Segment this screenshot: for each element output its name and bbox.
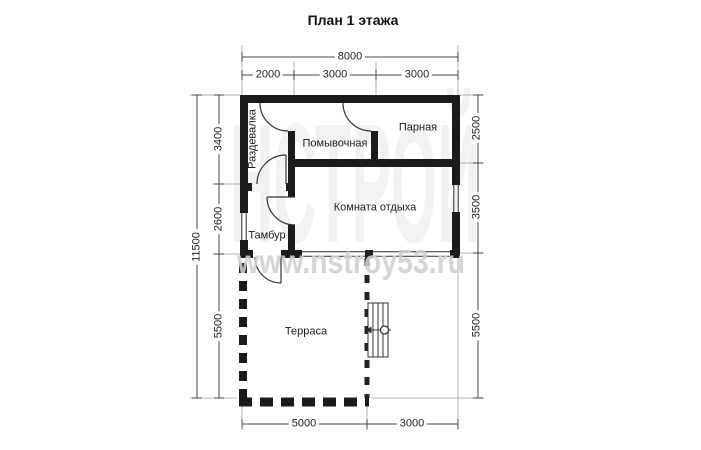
room-label-tambur: Тамбур (248, 231, 285, 242)
dim-left-segment-2: 2600 (214, 204, 225, 234)
floor-plan-drawing: НСТРОЙ (0, 0, 701, 450)
stairs-symbol (365, 303, 391, 357)
site-watermark: www.nstroy53.ru (236, 243, 465, 280)
dim-top-total: 8000 (335, 52, 365, 63)
room-label-razdevalka: Раздевалка (248, 109, 259, 169)
room-label-komnata-otdyha: Комната отдыха (334, 203, 417, 214)
dim-left-segment-1: 3400 (214, 124, 225, 154)
dim-right-segment-2: 3500 (472, 192, 483, 222)
room-label-pomyvochnaya: Помывочная (303, 139, 368, 150)
dim-left-total: 11500 (192, 229, 203, 265)
dim-bottom-segment-2: 3000 (397, 419, 427, 430)
room-label-terrasa: Терраса (285, 327, 327, 338)
dim-top-segment-1: 2000 (253, 70, 283, 81)
dim-bottom-segment-1: 5000 (289, 419, 319, 430)
dim-right-segment-3: 5500 (472, 310, 483, 340)
dim-right-segment-1: 2500 (472, 113, 483, 143)
dim-top-segment-3: 3000 (402, 70, 432, 81)
dim-left-segment-3: 5500 (214, 311, 225, 341)
floor-plan-page: НСТРОЙ (0, 0, 701, 450)
dim-top-segment-2: 3000 (320, 70, 350, 81)
room-label-parnaya: Парная (399, 123, 437, 134)
page-title: План 1 этажа (308, 13, 399, 27)
